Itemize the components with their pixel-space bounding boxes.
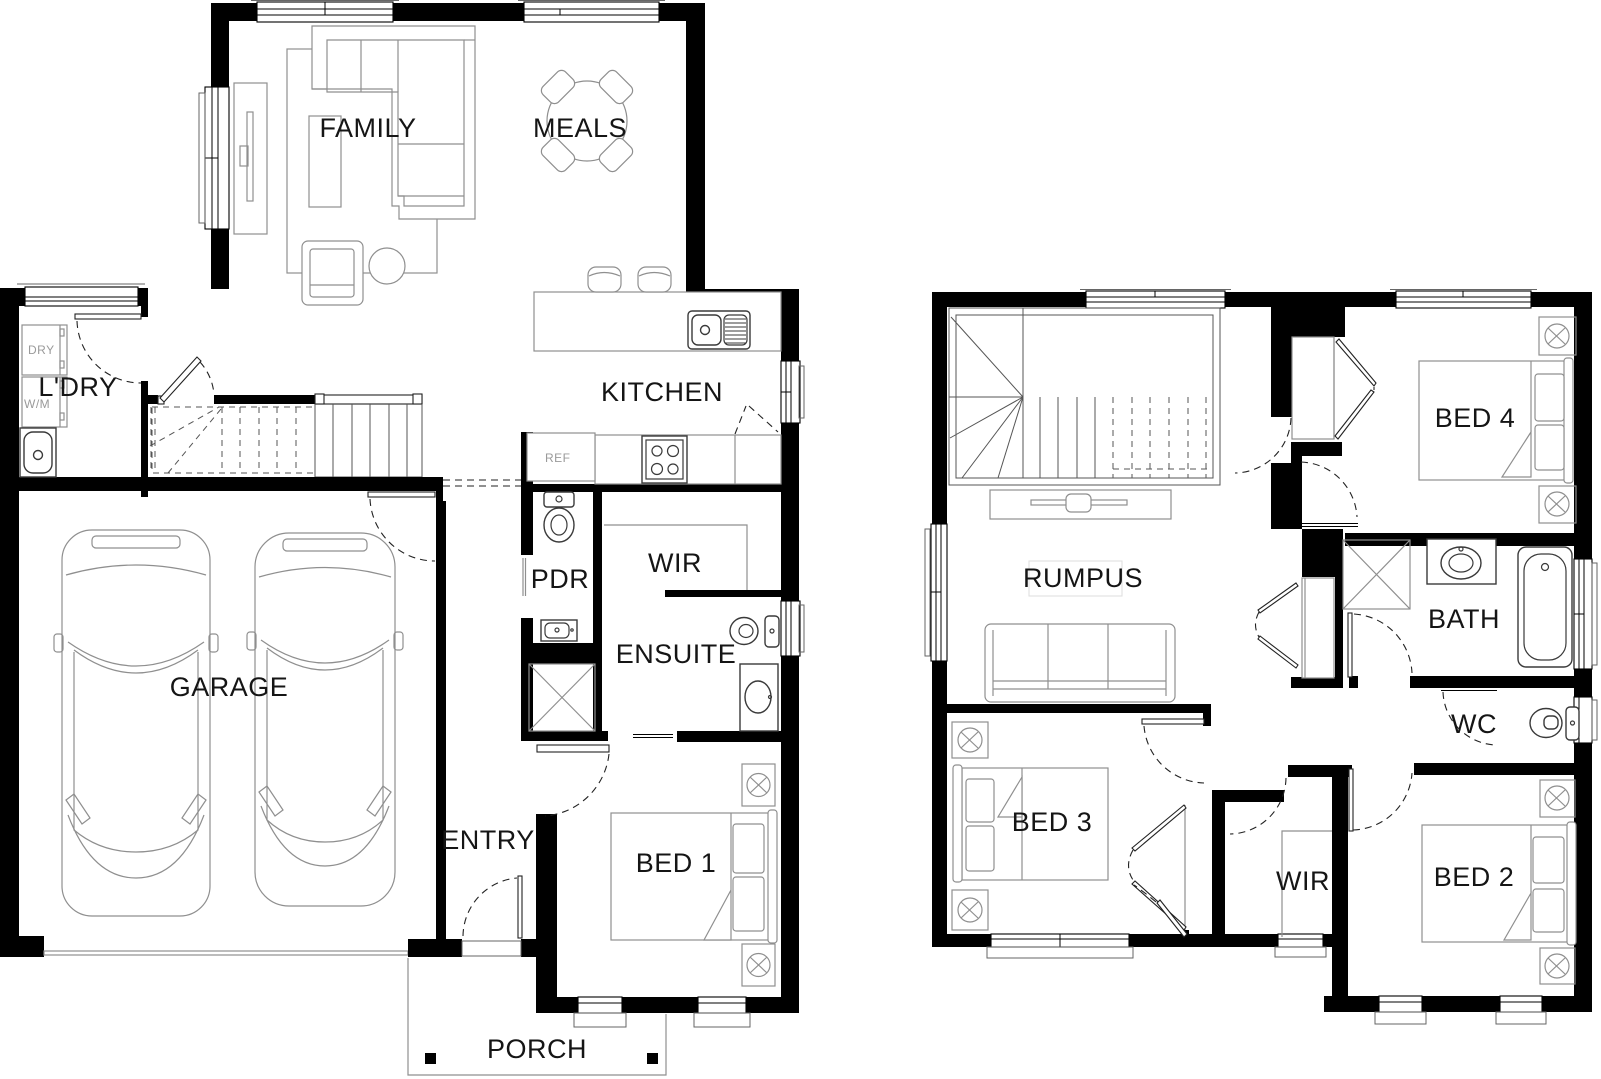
svg-text:BATH: BATH [1428, 604, 1500, 634]
svg-text:GARAGE: GARAGE [170, 672, 289, 702]
svg-text:KITCHEN: KITCHEN [601, 377, 723, 407]
svg-text:PORCH: PORCH [487, 1034, 587, 1064]
svg-text:BED 1: BED 1 [636, 848, 717, 878]
svg-text:BED 4: BED 4 [1435, 403, 1516, 433]
svg-text:REF: REF [545, 451, 571, 465]
svg-text:PDR: PDR [531, 564, 590, 594]
svg-text:RUMPUS: RUMPUS [1023, 563, 1143, 593]
svg-text:BED 3: BED 3 [1012, 807, 1093, 837]
svg-text:WC: WC [1451, 709, 1497, 739]
svg-text:BED 2: BED 2 [1434, 862, 1515, 892]
svg-text:L'DRY: L'DRY [38, 372, 117, 402]
svg-text:WIR: WIR [1276, 866, 1330, 896]
svg-text:MEALS: MEALS [533, 113, 627, 143]
svg-text:DRY: DRY [28, 343, 55, 357]
svg-text:ENTRY: ENTRY [441, 825, 535, 855]
svg-text:WIR: WIR [648, 548, 702, 578]
svg-text:ENSUITE: ENSUITE [616, 639, 737, 669]
svg-text:FAMILY: FAMILY [319, 113, 416, 143]
